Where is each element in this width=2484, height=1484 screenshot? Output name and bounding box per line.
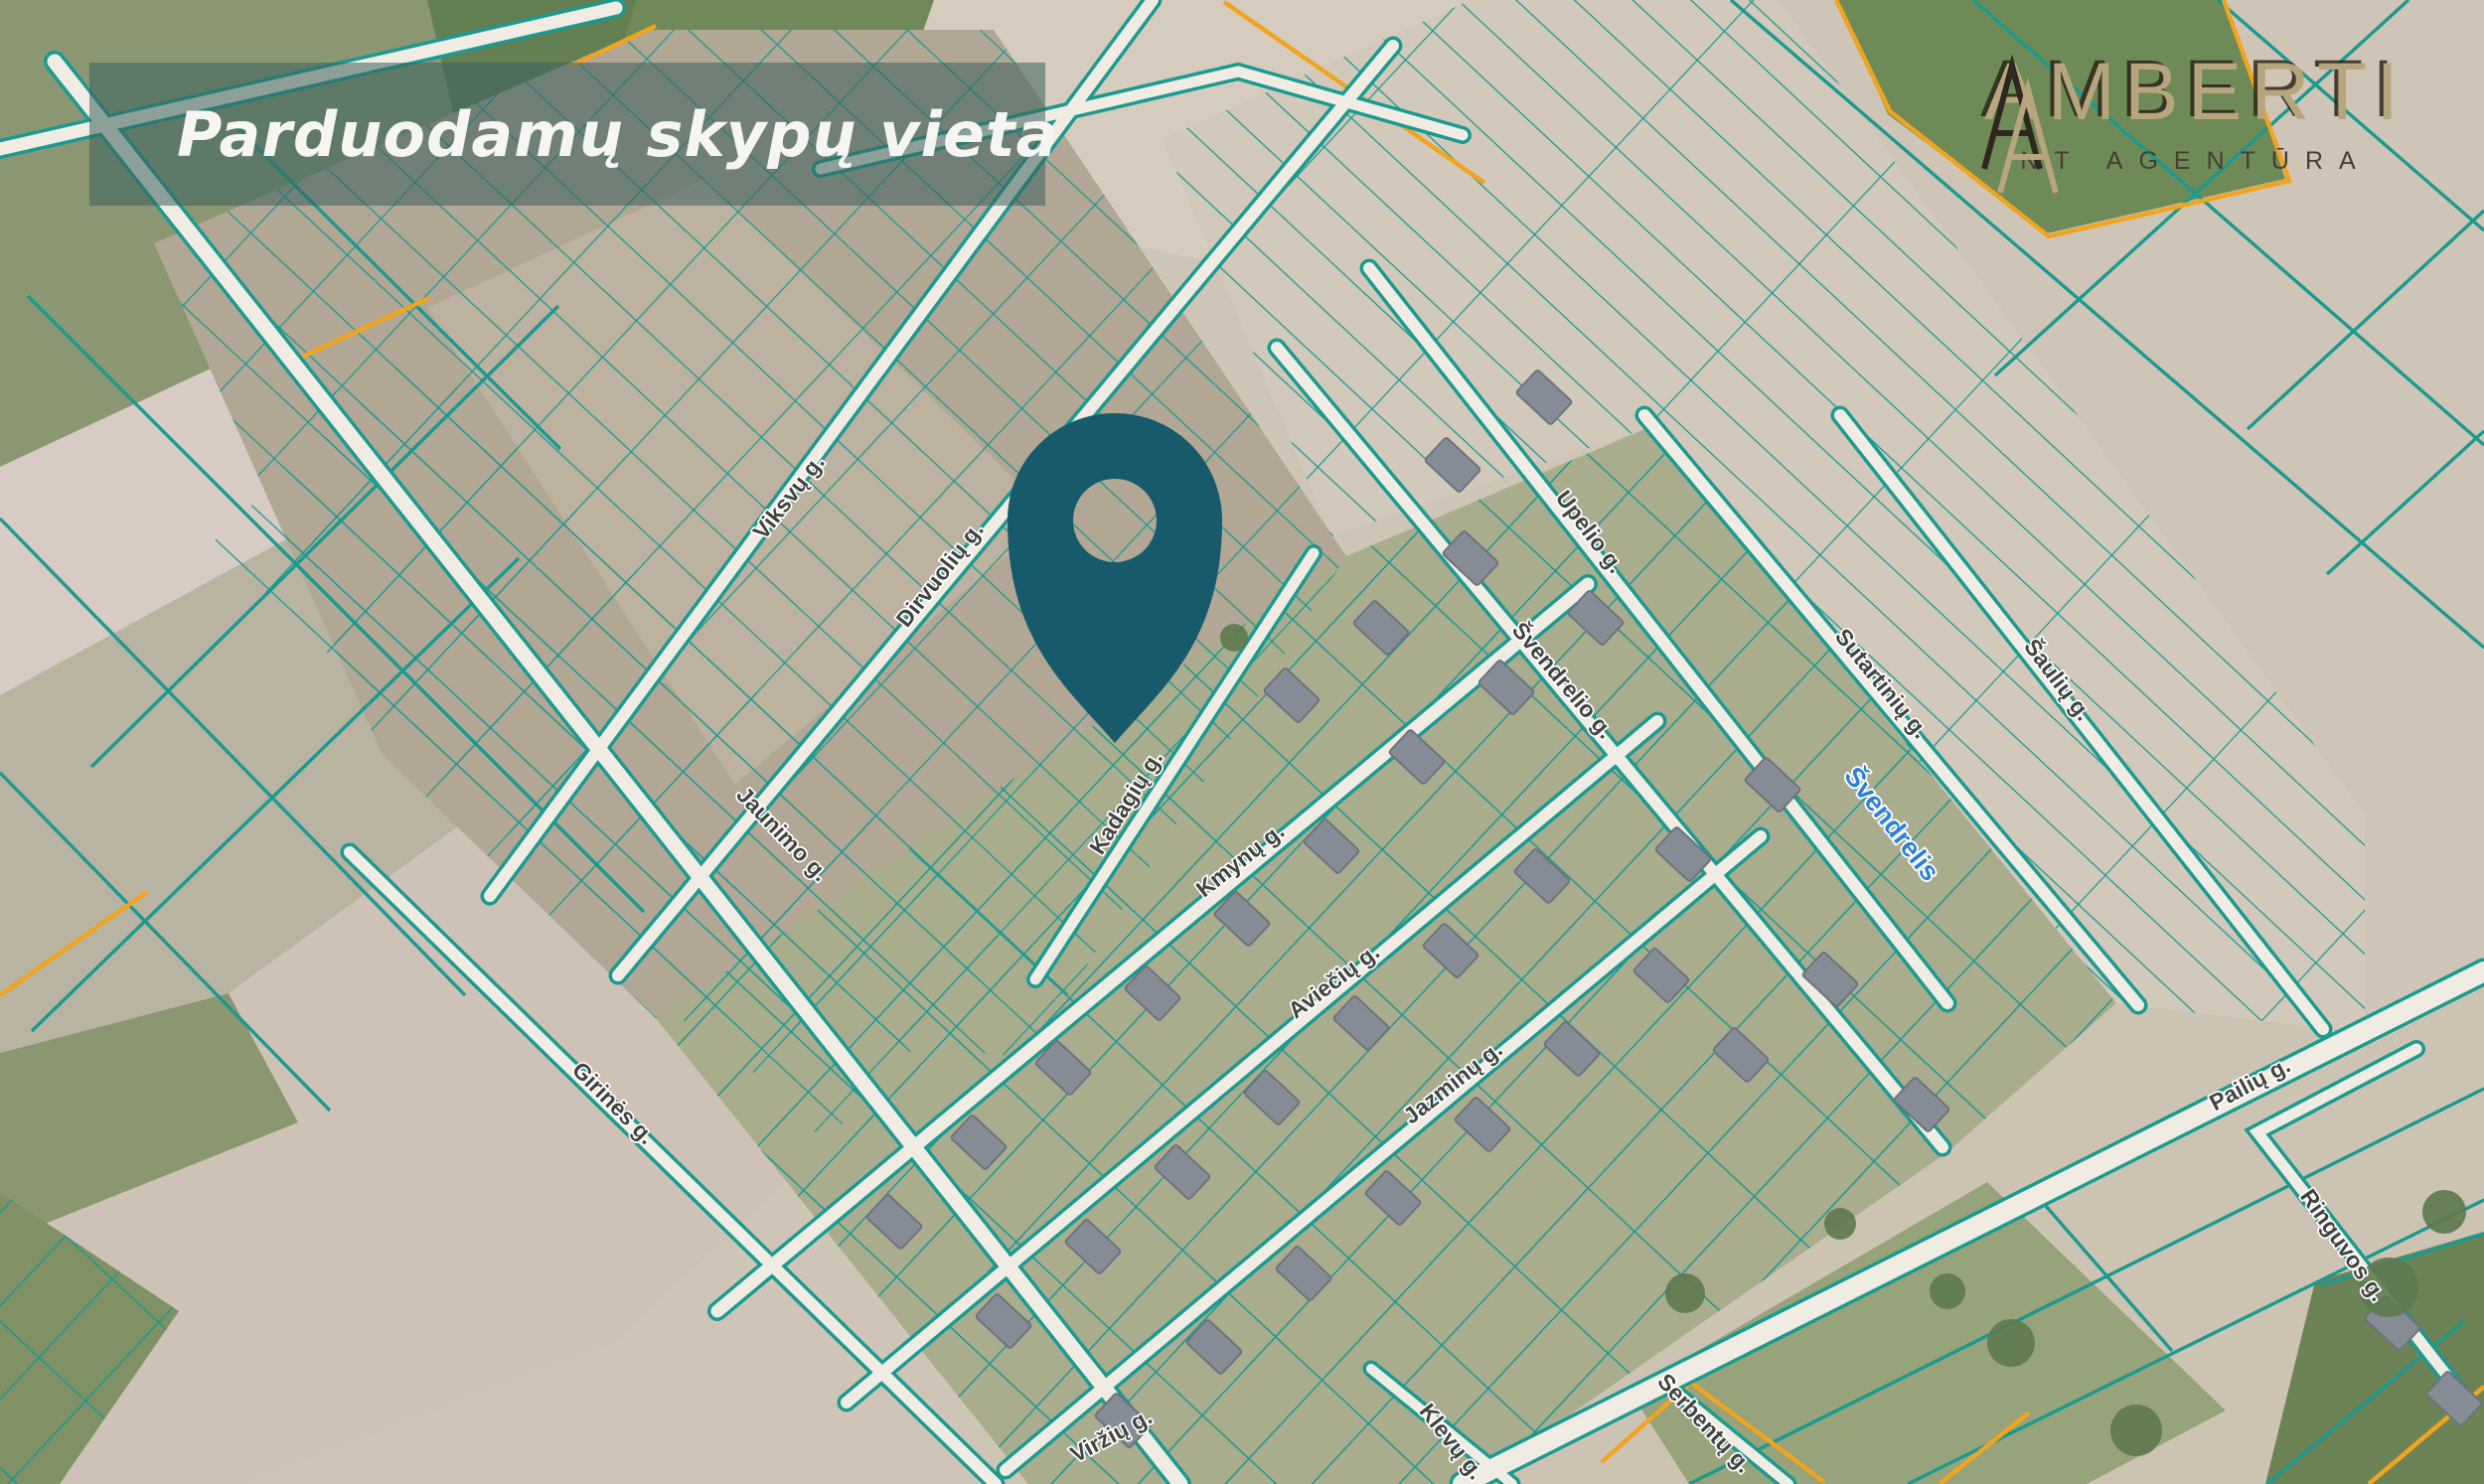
amberti-logo-icon [1962, 52, 2082, 201]
title-banner: Parduodamų skypų vieta [89, 63, 1045, 206]
satellite-map[interactable]: Viksvų g. Dirvuolių g. Jaunimo g. Upelio… [0, 0, 2484, 1484]
map-screenshot: Viksvų g. Dirvuolių g. Jaunimo g. Upelio… [0, 0, 2484, 1484]
banner-title: Parduodamų skypų vieta [177, 98, 1058, 171]
brand-logo: AMBERTI NT AGENTŪRA [1962, 52, 2429, 176]
